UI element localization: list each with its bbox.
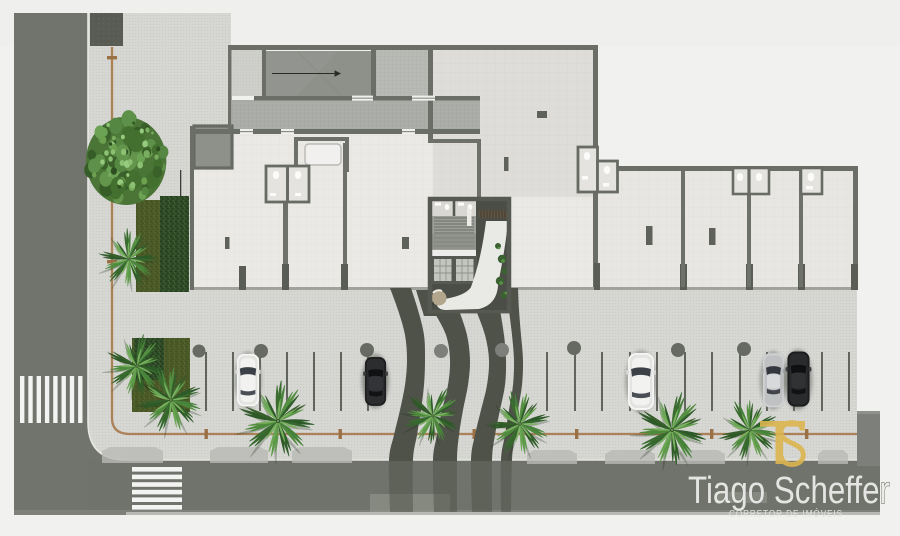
svg-text:CORRETOR DE IMÓVEIS: CORRETOR DE IMÓVEIS [729,507,843,520]
svg-text:Tiago Scheffer: Tiago Scheffer [688,470,890,512]
